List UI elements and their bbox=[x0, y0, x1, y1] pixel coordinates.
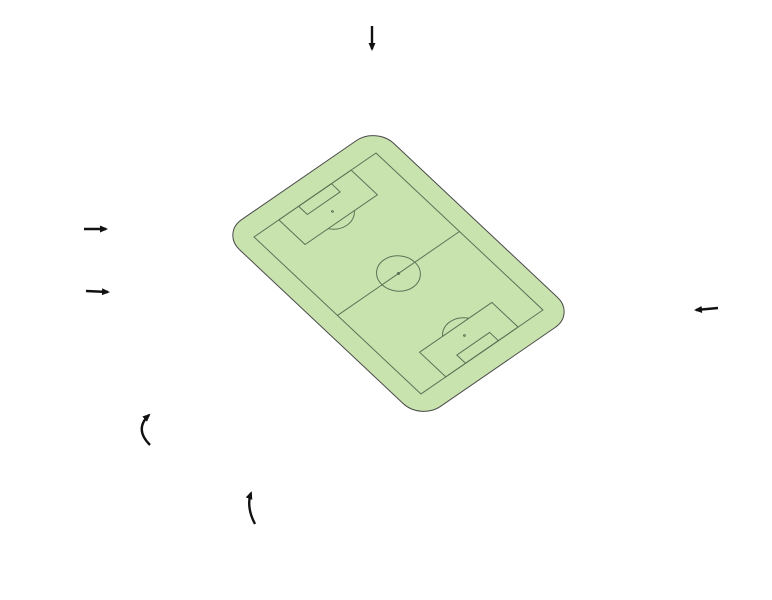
stadium-seating-map bbox=[0, 0, 772, 600]
entrance-arrow-left-lower bbox=[86, 291, 108, 292]
stadium-map-svg bbox=[0, 0, 772, 600]
